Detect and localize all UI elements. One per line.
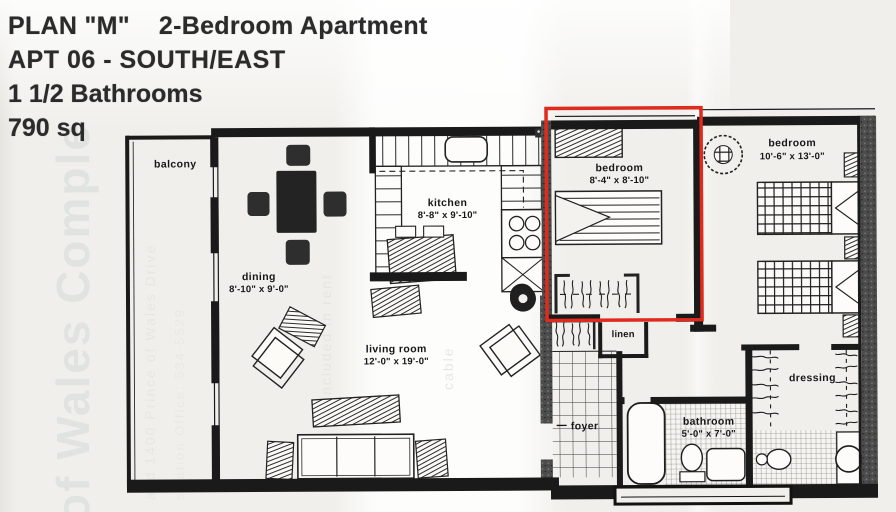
- wall: [860, 116, 878, 488]
- foyer-tile-floor: [552, 351, 617, 477]
- large-bedroom-label: bedroom: [768, 137, 816, 149]
- sofa-side-table: [266, 441, 294, 479]
- dressing-closet-right: [835, 350, 857, 428]
- bathroom-label: bathroom: [683, 416, 735, 428]
- bed-icon: [757, 182, 865, 235]
- dining-chair: [247, 192, 269, 216]
- balcony-label: balcony: [154, 158, 197, 170]
- bed-icon: [555, 191, 661, 245]
- living-room-dims: 12'-0" x 19'-0": [364, 356, 429, 367]
- wall: [127, 477, 559, 492]
- kitchen-dims: 8'-8" x 9'-10": [418, 210, 478, 221]
- dining-label: dining: [242, 271, 276, 283]
- wall: [125, 136, 131, 488]
- dressing-closet-left: [751, 350, 778, 426]
- foyer-label: foyer: [571, 420, 599, 432]
- toilet-tank: [680, 472, 705, 482]
- wall: [616, 351, 623, 486]
- dresser-icon: [555, 126, 622, 157]
- plan-title: PLAN "M" 2-Bedroom Apartment: [8, 10, 428, 43]
- toilet-icon: [767, 449, 791, 469]
- media-console: [371, 285, 421, 317]
- dining-table: [276, 171, 316, 233]
- bathtub-icon: [628, 403, 665, 484]
- bed-icon: [758, 261, 866, 314]
- bathrooms-count: 1 1/2 Bathrooms: [8, 77, 428, 111]
- refrigerator-icon: [445, 137, 487, 162]
- large-bedroom-dims: 10'-6" x 13'-0": [760, 151, 825, 162]
- wall: [745, 346, 753, 485]
- small-bedroom-label: bedroom: [595, 162, 643, 174]
- linen-label: linen: [612, 329, 635, 340]
- stove-icon: [502, 210, 544, 258]
- closet-icon: [556, 275, 638, 313]
- foyer-closet-icon: [552, 319, 616, 351]
- wall: [547, 120, 701, 130]
- sofa-side-table: [416, 439, 449, 478]
- toilet-icon: [681, 444, 702, 471]
- plan-header: PLAN "M" 2-Bedroom Apartment APT 06 - SO…: [8, 10, 428, 145]
- living-room-furniture: [247, 284, 541, 479]
- apartment-number: APT 06 - SOUTH/EAST: [8, 43, 428, 77]
- dining-chair: [286, 145, 310, 166]
- vanity-icon: [707, 448, 745, 480]
- small-bedroom-dims: 8'-4" x 8'-10": [590, 175, 650, 186]
- area-sqft: 790 sq: [8, 111, 428, 145]
- dining-dims: 8'-10" x 9'-0": [229, 284, 289, 295]
- wall: [697, 116, 875, 126]
- scanned-floorplan-page: of Wales Comple and 1400 Prince of Wales…: [0, 0, 896, 512]
- small-bedroom-furniture: [555, 126, 662, 314]
- wall: [370, 272, 467, 282]
- bathroom-dims: 5'-0" x 7'-0": [682, 429, 736, 440]
- wall: [690, 325, 716, 332]
- wall: [831, 344, 861, 350]
- coffee-table: [312, 395, 400, 427]
- armchair-icon: [480, 320, 540, 380]
- entry-step: [615, 486, 791, 504]
- large-bedroom-furniture: [704, 135, 871, 338]
- dressing-label: dressing: [789, 372, 836, 384]
- kitchen-label: kitchen: [428, 197, 468, 209]
- dining-set: [247, 145, 347, 266]
- round-sink-icon: [836, 446, 862, 472]
- dining-chair: [286, 240, 310, 265]
- dining-chair: [323, 192, 346, 217]
- wall: [651, 396, 749, 404]
- sofa-icon: [298, 434, 414, 479]
- kitchen-counter-right: [501, 166, 541, 210]
- living-room-label: living room: [366, 343, 427, 355]
